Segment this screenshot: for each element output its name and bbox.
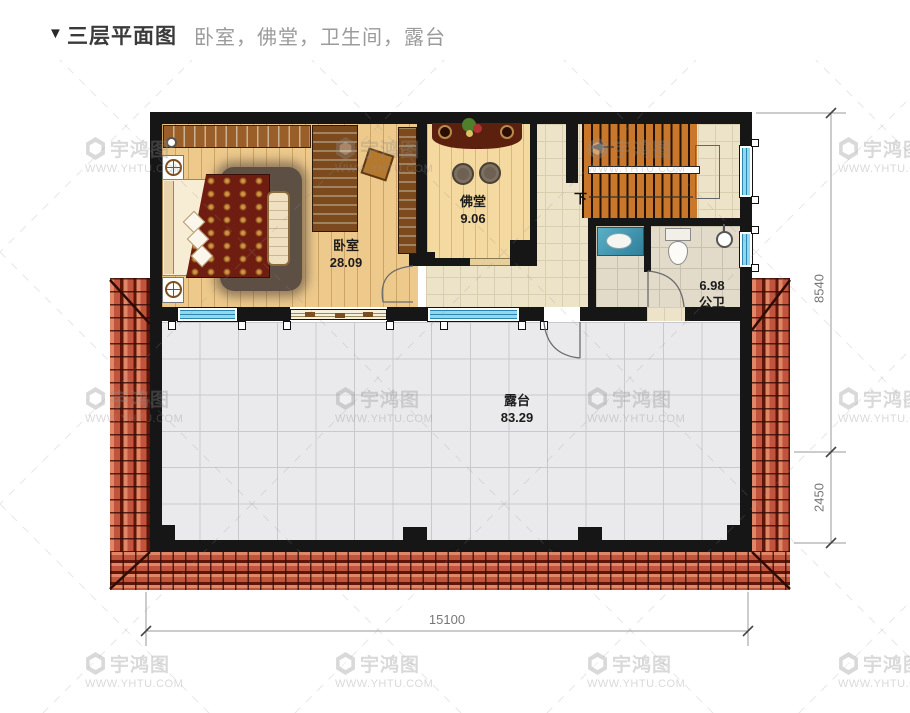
parapet-stub xyxy=(403,527,427,552)
sliding-door-mark xyxy=(363,312,373,317)
altar-bowl xyxy=(438,125,452,139)
nightstand xyxy=(162,155,184,180)
wall-buddha-hall-bottom xyxy=(427,258,470,266)
bedroom-label: 卧室 28.09 xyxy=(306,238,386,272)
watermark: 宇鸿图 WWW.YHTU.COM xyxy=(85,650,195,690)
buddha-hall-threshold xyxy=(470,258,510,266)
buddha-hall-name: 佛堂 xyxy=(433,194,513,211)
wall-end-cap xyxy=(751,139,759,147)
wall-west xyxy=(150,112,162,552)
wall-stairwell-left xyxy=(566,112,578,183)
bedroom-name: 卧室 xyxy=(306,238,386,255)
window-hall-south xyxy=(427,307,520,322)
wall-end-cap xyxy=(751,226,759,234)
brand-logo-icon xyxy=(85,652,106,675)
roof-strip-right xyxy=(752,278,790,590)
wall-south xyxy=(150,540,752,552)
altar-flowers xyxy=(473,124,482,133)
sliding-door-mark xyxy=(335,313,345,318)
brand-logo-icon xyxy=(838,387,859,410)
brand-logo-icon xyxy=(85,137,106,160)
flower-icon xyxy=(165,281,182,298)
bathroom-area: 6.98 xyxy=(672,278,752,295)
brand-logo-icon xyxy=(335,652,356,675)
terrace-label: 露台 83.29 xyxy=(477,393,557,427)
wall-pier xyxy=(510,240,537,266)
wall-end-cap xyxy=(283,321,291,330)
wall-bedroom-hall xyxy=(417,124,427,252)
flower-icon xyxy=(165,159,182,176)
wall-bathroom-divider xyxy=(644,226,651,272)
watermark: 宇鸿图 WWW.YHTU.COM xyxy=(587,650,697,690)
sliding-door-south xyxy=(290,309,387,320)
shower-arm xyxy=(723,224,725,232)
wall-segment xyxy=(520,307,544,321)
watermark: 宇鸿图 WWW.YHTU.COM xyxy=(335,650,445,690)
parapet-stub xyxy=(150,525,175,552)
window-bathroom-east xyxy=(739,231,753,268)
wall-segment xyxy=(150,307,177,321)
bathroom-name: 公卫 xyxy=(672,295,752,312)
bathroom-label: 6.98 公卫 xyxy=(672,278,752,312)
shower-head-icon xyxy=(716,231,733,248)
wall-end-cap xyxy=(238,321,246,330)
floor-plan-page: ▼ 三层平面图 卧室，佛堂，卫生间，露台 xyxy=(0,0,910,713)
dimension-right-upper: 8540 xyxy=(812,264,827,314)
title-marker-icon: ▼ xyxy=(48,25,63,42)
parapet-stub xyxy=(727,525,752,552)
watermark: 宇鸿图 WWW.YHTU.COM xyxy=(838,135,910,175)
wall-end-cap xyxy=(518,321,526,330)
page-title: 三层平面图 xyxy=(67,20,177,50)
terrace-name: 露台 xyxy=(477,393,557,410)
buddha-hall-area: 9.06 xyxy=(433,211,513,228)
watermark: 宇鸿图 WWW.YHTU.COM xyxy=(838,650,910,690)
wardrobe-side xyxy=(398,127,417,254)
sliding-door-mark xyxy=(305,312,315,317)
watermark: 宇鸿图 WWW.YHTU.COM xyxy=(838,385,910,425)
wall-end-cap xyxy=(440,321,448,330)
dimension-right-lower: 2450 xyxy=(812,473,827,523)
altar-bowl xyxy=(500,125,514,139)
prayer-cushion xyxy=(479,162,501,184)
wall-segment xyxy=(238,307,290,321)
nightstand xyxy=(162,277,184,303)
terrace-area: 83.29 xyxy=(477,410,557,427)
terrace-floor xyxy=(161,322,740,540)
roof-strip-bottom xyxy=(110,552,790,590)
stair-handrail xyxy=(588,166,700,174)
stairs-down-label: 下 xyxy=(574,188,590,207)
altar-flowers xyxy=(466,130,473,137)
window-bedroom-south xyxy=(177,307,238,322)
wall-end-cap xyxy=(386,321,394,330)
bed-end-bench xyxy=(267,191,290,266)
wall-end-cap xyxy=(751,264,759,272)
wardrobe-tall xyxy=(312,125,358,232)
closet xyxy=(163,125,311,148)
bed-headboard xyxy=(164,181,174,274)
dimension-bottom: 15100 xyxy=(417,612,477,627)
brand-logo-icon xyxy=(838,137,859,160)
closet-knob-icon xyxy=(166,137,177,148)
wall-bathroom-left xyxy=(588,226,596,307)
wall-end-cap xyxy=(540,321,548,330)
buddha-hall-label: 佛堂 9.06 xyxy=(433,194,513,228)
window-stair-east xyxy=(739,145,753,198)
brand-logo-icon xyxy=(587,652,608,675)
prayer-cushion xyxy=(452,163,474,185)
wall-end-cap xyxy=(168,321,176,330)
brand-logo-icon xyxy=(838,652,859,675)
bedroom-area: 28.09 xyxy=(306,255,386,272)
wall-stair-bath xyxy=(588,218,740,226)
sink xyxy=(606,233,632,249)
wall-end-cap xyxy=(751,196,759,204)
brand-logo-icon xyxy=(85,387,106,410)
wall-segment xyxy=(387,307,427,321)
roof-strip-left xyxy=(110,278,150,590)
toilet-tank xyxy=(665,228,691,241)
parapet-stub xyxy=(578,527,602,552)
page-subtitle: 卧室，佛堂，卫生间，露台 xyxy=(194,21,446,50)
